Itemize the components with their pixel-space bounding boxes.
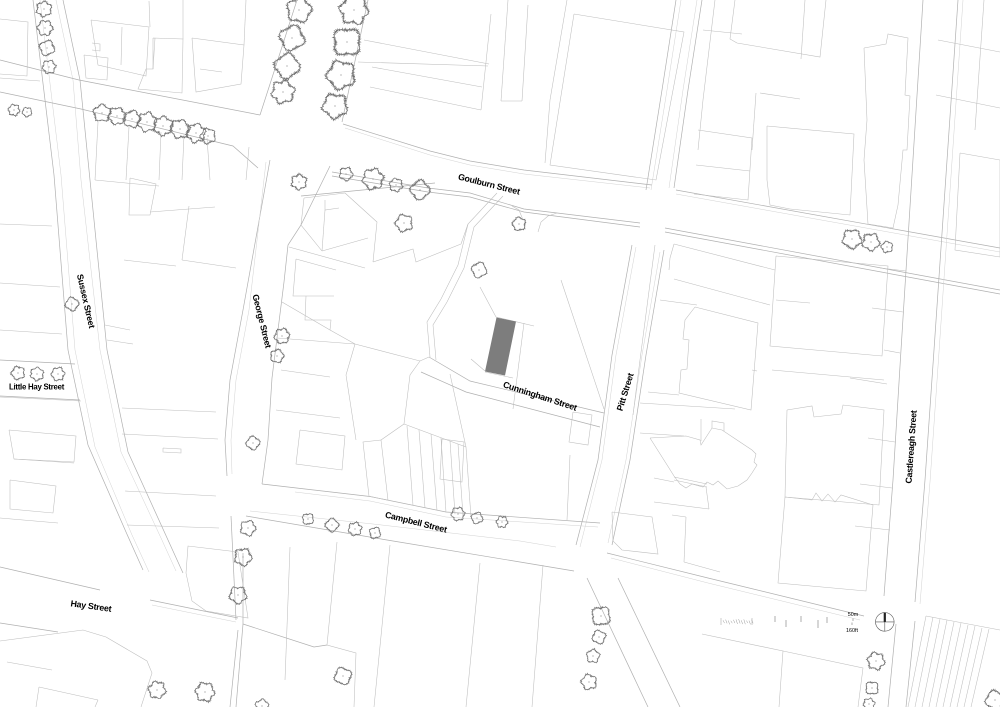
svg-text:160ft: 160ft (846, 628, 858, 634)
svg-text:50m: 50m (848, 612, 859, 618)
svg-text:Little Hay Street: Little Hay Street (9, 383, 65, 392)
